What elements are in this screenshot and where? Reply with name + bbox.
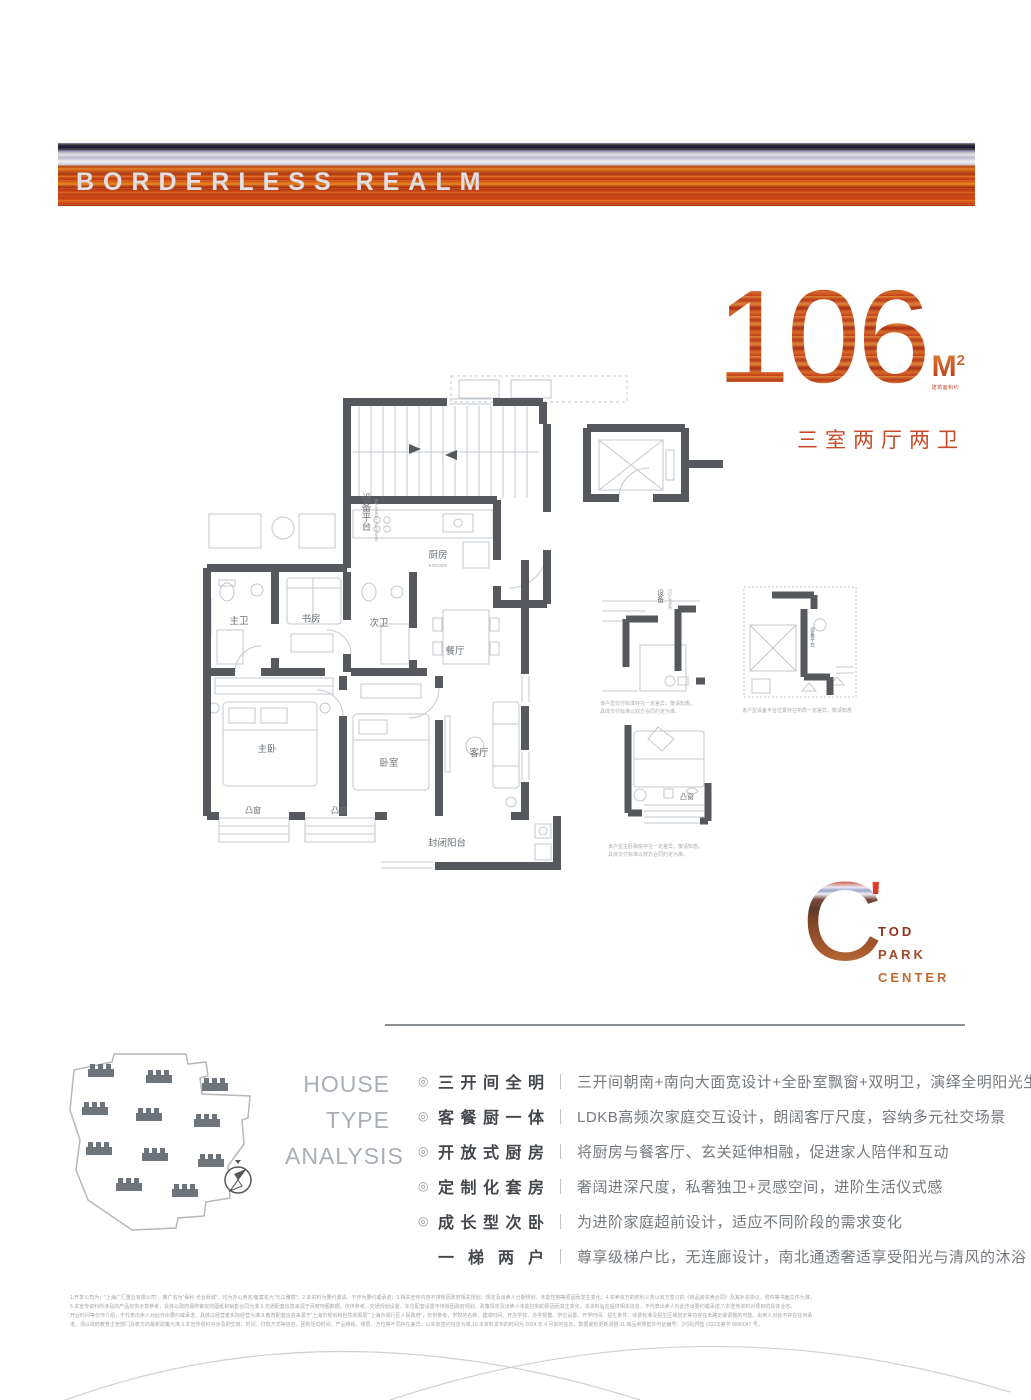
banner: BORDERLESS REALM — [58, 140, 975, 206]
analysis-heading-house: HOUSE — [285, 1066, 390, 1102]
disclaimer: 1.开发公司为：“上海广汇置业有限公司”，推广名为“保利·光合跃城”，均为办公用… — [70, 1294, 976, 1330]
detail-diagram-bay-window: 凸窗 — [608, 725, 723, 837]
disclaimer-line: 开业时间等仅作介绍，不代表出卖人对此作出要约或承诺，具体以经营者实际经营为准,8… — [70, 1312, 976, 1321]
detail2-walls — [772, 595, 830, 695]
analysis-item-desc: 尊享级梯户比，无连廊设计，南北通透奢适享受阳光与清风的沐浴 — [577, 1246, 1027, 1267]
detail-diagram-equipment-2: 设备平台 — [742, 585, 860, 703]
detail3-label: 凸窗 — [680, 792, 694, 801]
disclaimer-line: 1.开发公司为：“上海广汇置业有限公司”，推广名为“保利·光合跃城”，均为办公用… — [70, 1294, 976, 1303]
disclaimer-line: 5.本宣传资料所涉及的产品仅供示意参考，具体以政府最终审定的图纸和销售合同为准,… — [70, 1303, 976, 1312]
analysis-item-title: 一梯两户 — [438, 1244, 544, 1268]
analysis-heading-type: TYPE — [285, 1102, 390, 1138]
logo-apostrophe: ' — [870, 876, 881, 924]
logo-wordmark: TOD PARK CENTER — [878, 920, 949, 989]
detail3-lines — [634, 727, 704, 823]
disclaimer-line: 诺，须以政府教育主管部门及校方的最新政策为准,9.本宣传资料中涉及的交房、时间、… — [70, 1321, 976, 1330]
area-note: 建筑面积约 — [932, 384, 960, 391]
label-living: 客厅 — [469, 747, 489, 759]
banner-title: BORDERLESS REALM — [76, 168, 489, 197]
detail3-caption: 该户型主卧飘窗存在一定差异，敬请知悉。 具体交付标准以双方合同约定为准。 — [608, 843, 703, 859]
label-bay-window-2: 凸窗 — [331, 805, 347, 815]
label-study: 书房 — [301, 613, 320, 625]
detail1-caption: 该户型交付标准存在一定差异，敬请知悉。 具体交付标准以双方合同约定为准。 — [600, 700, 695, 716]
detail2-dashed-frame — [744, 587, 856, 697]
label-bay-window-1: 凸窗 — [245, 805, 261, 815]
label-dining: 餐厅 — [445, 645, 465, 657]
bullseye-icon: ◎ — [418, 1109, 438, 1123]
logo-line-park: PARK — [878, 943, 949, 966]
bullseye-icon: ◎ — [418, 1179, 438, 1193]
detail3-walls — [628, 725, 708, 821]
label-kitchen-en: KITCHEN — [429, 563, 447, 568]
label-master-bath: 主卫 — [229, 615, 249, 627]
project-logo: C ' TOD PARK CENTER — [802, 876, 982, 1006]
bottom-arcs-decoration — [0, 1330, 1031, 1400]
detail2-caption: 该户型设备平台位置存在布局一定差异，敬请知悉 — [742, 707, 852, 715]
analysis-item-desc: 奢阔进深尺度，私奢独卫+灵感空间，进阶生活仪式感 — [577, 1176, 943, 1197]
analysis-item: ◎ 成长型次卧 ｜ 为进阶家庭超前设计，适应不同阶段的需求变化 — [418, 1210, 988, 1232]
detail1-label-en: EQUIPME — [668, 589, 673, 610]
analysis-item-desc: 为进阶家庭超前设计，适应不同阶段的需求变化 — [577, 1211, 903, 1232]
logo-line-tod: TOD — [878, 920, 949, 943]
analysis-item-separator: ｜ — [553, 1246, 568, 1267]
analysis-heading: HOUSE TYPE ANALYSIS — [285, 1066, 390, 1174]
label-second-bath: 次卫 — [369, 617, 389, 629]
analysis-item-desc: 将厨房与餐客厅、玄关延伸相融，促进家人陪伴和互动 — [577, 1141, 949, 1162]
logo-line-center: CENTER — [878, 966, 949, 989]
analysis-item: ◎ 定制化套房 ｜ 奢阔进深尺度，私奢独卫+灵感空间，进阶生活仪式感 — [418, 1175, 988, 1197]
site-buildings — [82, 1064, 228, 1197]
area-unit-wrap: M2 建筑面积约 — [932, 352, 965, 391]
analysis-item: ◎ 客餐厨一体 ｜ LDKB高频次家庭交互设计，朗阔客厅尺度，容纳多元社交场景 — [418, 1105, 988, 1127]
analysis-item-title: 三开间全明 — [438, 1069, 544, 1093]
area-unit: M2 — [932, 352, 965, 382]
bullseye-icon: ◎ — [418, 1144, 438, 1158]
area-headline: 106 M2 建筑面积约 — [716, 276, 965, 397]
analysis-item-title: 客餐厨一体 — [438, 1104, 544, 1128]
label-balcony: 封闭阳台 — [428, 837, 466, 849]
label-equipment-platform-en: EQUIPMENT PLATFORM — [374, 499, 378, 541]
site-plan-map — [60, 1052, 260, 1242]
analysis-item-title: 开放式厨房 — [438, 1139, 544, 1163]
detail-diagram-equipment: 设备 EQUIPME — [600, 585, 705, 697]
section-divider — [385, 1024, 965, 1026]
analysis-item-title: 定制化套房 — [438, 1174, 544, 1198]
area-layout-subtitle: 三室两厅两卫 — [797, 424, 965, 454]
analysis-item-separator: ｜ — [553, 1176, 568, 1197]
analysis-heading-analysis: ANALYSIS — [285, 1138, 390, 1174]
label-equipment-platform: 设备平台 — [360, 493, 372, 532]
analysis-item: ◎ 开放式厨房 ｜ 将厨房与餐客厅、玄关延伸相融，促进家人陪伴和互动 — [418, 1140, 988, 1162]
analysis-item-separator: ｜ — [553, 1106, 568, 1127]
analysis-item: 一梯两户 ｜ 尊享级梯户比，无连廊设计，南北通透奢适享受阳光与清风的沐浴 — [418, 1245, 988, 1267]
analysis-item-title: 成长型次卧 — [438, 1209, 544, 1233]
bullseye-icon: ◎ — [418, 1214, 438, 1228]
detail1-lines — [602, 601, 700, 691]
analysis-item-desc: 三开间朝南+南向大面宽设计+全卧室飘窗+双明卫，演绎全明阳光生活 — [577, 1071, 1031, 1092]
analysis-item: ◎ 三开间全明 ｜ 三开间朝南+南向大面宽设计+全卧室飘窗+双明卫，演绎全明阳光… — [418, 1070, 988, 1092]
brochure-page: BORDERLESS REALM 106 M2 建筑面积约 三室两厅两卫 — [0, 0, 1031, 1400]
analysis-item-separator: ｜ — [553, 1211, 568, 1232]
analysis-list: ◎ 三开间全明 ｜ 三开间朝南+南向大面宽设计+全卧室飘窗+双明卫，演绎全明阳光… — [418, 1070, 988, 1280]
bullseye-icon: ◎ — [418, 1074, 438, 1088]
label-kitchen: 厨房 — [428, 549, 447, 561]
detail1-label: 设备 — [657, 588, 665, 604]
analysis-item-separator: ｜ — [553, 1141, 568, 1162]
detail2-label: 设备平台 — [809, 626, 815, 648]
analysis-item-desc: LDKB高频次家庭交互设计，朗阔客厅尺度，容纳多元社交场景 — [577, 1106, 1006, 1127]
analysis-item-separator: ｜ — [553, 1071, 568, 1092]
label-master-bedroom: 主卧 — [257, 743, 277, 755]
label-bedroom: 卧室 — [379, 757, 398, 769]
area-number: 106 — [716, 276, 927, 397]
